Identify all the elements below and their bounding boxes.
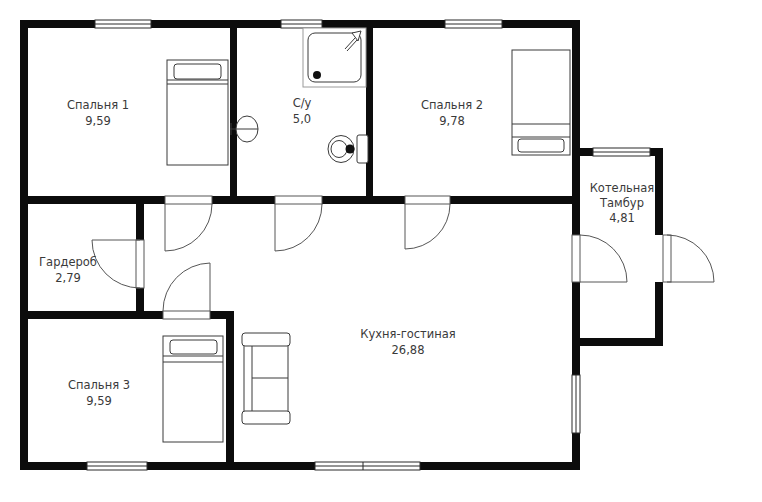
- room-area: 9,59: [48, 113, 148, 129]
- wall-segment: [366, 28, 373, 196]
- wall-segment: [136, 288, 144, 311]
- floor-plan-drawing: [0, 0, 762, 502]
- room-name: Кухня-гостиная: [338, 326, 478, 342]
- room-name: Котельная: [572, 181, 672, 196]
- room-name: Гардероб: [18, 254, 118, 270]
- door-bedroom2: [405, 196, 450, 249]
- window-bedroom2: [445, 20, 502, 28]
- room-name: Спальня 1: [48, 97, 148, 113]
- room-name: Спальня 3: [49, 377, 149, 393]
- room-name: Спальня 2: [402, 97, 502, 113]
- room-label-wardrobe: Гардероб 2,79: [18, 254, 118, 286]
- room-area: 2,79: [18, 270, 118, 286]
- wall-segment: [226, 319, 234, 462]
- bed-icon-bedroom3: [163, 336, 223, 442]
- window-bathroom: [281, 20, 322, 28]
- door-entrance: [663, 235, 714, 282]
- window-bedroom3: [87, 462, 147, 470]
- room-area: 26,88: [338, 342, 478, 358]
- room-label-boiler: Котельная Тамбур 4,81: [572, 181, 672, 226]
- door-bedroom3: [163, 263, 210, 319]
- window-kitchen-east: [572, 375, 580, 433]
- room-name-2: Тамбур: [572, 196, 672, 211]
- bed-icon-bedroom2: [512, 50, 570, 155]
- toilet-icon: [328, 135, 368, 163]
- shower-icon: [303, 28, 366, 87]
- bed-icon-bedroom1: [167, 60, 228, 165]
- sofa-icon: [242, 333, 290, 424]
- door-bedroom1: [165, 196, 212, 251]
- room-area: 5,0: [272, 111, 332, 127]
- window-boiler: [593, 148, 650, 156]
- room-area: 9,59: [49, 393, 149, 409]
- wall-segment: [580, 338, 663, 346]
- room-area: 4,81: [572, 211, 672, 226]
- wall-segment: [230, 28, 237, 196]
- door-boiler-inner: [572, 235, 627, 282]
- room-area: 9,78: [402, 113, 502, 129]
- window-kitchen-south: [315, 462, 420, 470]
- room-label-bedroom2: Спальня 2 9,78: [402, 97, 502, 129]
- wall-segment: [450, 196, 572, 204]
- wall-segment: [28, 196, 165, 204]
- floor-plan: Спальня 1 9,59 С/у 5,0 Спальня 2 9,78 Ко…: [0, 0, 762, 502]
- door-bathroom: [275, 196, 322, 251]
- wall-segment: [655, 282, 663, 346]
- wall-segment: [210, 311, 234, 319]
- wall-segment: [322, 196, 405, 204]
- wall-segment: [20, 20, 28, 470]
- wall-segment: [136, 204, 144, 240]
- room-label-bathroom: С/у 5,0: [272, 95, 332, 127]
- wall-segment: [212, 196, 275, 204]
- window-bedroom1: [95, 20, 151, 28]
- room-label-kitchen: Кухня-гостиная 26,88: [338, 326, 478, 358]
- room-name: С/у: [272, 95, 332, 111]
- room-label-bedroom3: Спальня 3 9,59: [49, 377, 149, 409]
- room-label-bedroom1: Спальня 1 9,59: [48, 97, 148, 129]
- wall-segment: [28, 311, 163, 319]
